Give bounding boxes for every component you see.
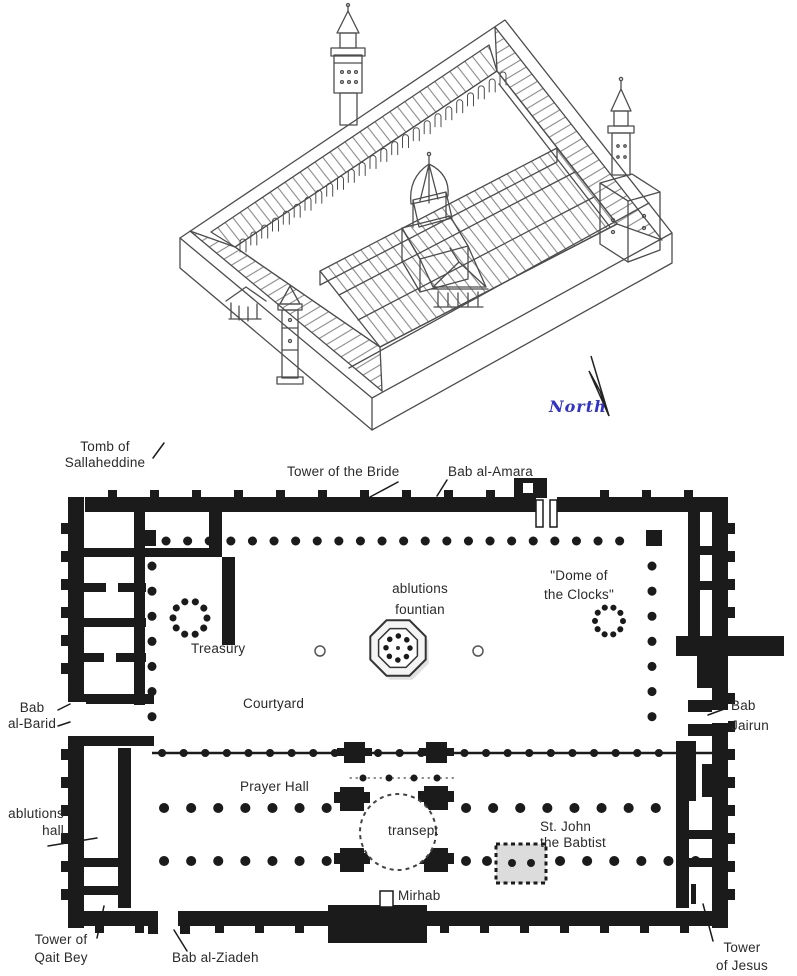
floor-plan [48,443,784,951]
label-line: the Clocks" [544,587,614,602]
label-tomb-of-sallaheddine: Tomb of Sallaheddine [40,439,170,471]
label-st-john-the-baptist: St. John the Babtist [540,819,606,851]
mosque-diagram: Tomb of Sallaheddine Tower of the Bride … [0,0,797,976]
label-dome-of-the-clocks: "Dome of the Clocks" [527,566,631,604]
label-line: ablutions [392,581,448,596]
label-tower-of-the-bride: Tower of the Bride [287,464,399,480]
ablutions-fountain-shape [370,620,428,679]
treasury-ring [173,601,207,635]
label-bab-jairun: Bab Jairun [731,696,769,736]
label-tower-of-jesus: Tower of Jesus [706,939,778,975]
label-bab-al-amara: Bab al-Amara [448,464,533,480]
label-courtyard: Courtyard [243,696,304,712]
isometric-view [180,4,672,431]
label-mihrab: Mirhab [398,888,440,904]
label-transept: transept [388,823,438,839]
label-ablutions-hall: ablutions hall [0,805,64,839]
st-john-shrine [496,844,546,883]
plan-walls [61,478,784,943]
label-line: St. John [540,819,591,834]
label-bab-al-ziadeh: Bab al-Ziadeh [172,950,259,966]
label-line: Bab [20,700,45,715]
label-line: Bab [731,698,756,713]
courtyard-small-circle-west [315,646,325,656]
courtyard-small-circle-east [473,646,483,656]
label-line: ablutions [8,806,64,821]
label-line: Qait Bey [34,950,87,965]
label-line: fountian [395,602,445,617]
label-line: Jairun [731,718,769,733]
mihrab-niche [380,891,393,907]
label-ablutions-fountain: ablutions fountian [368,578,472,620]
label-line: hall [42,823,64,838]
label-line: Tower [723,940,760,955]
label-north: North [549,399,607,415]
label-tower-of-qait-bey: Tower of Qait Bey [25,931,97,967]
label-line: of Jesus [716,958,768,973]
label-prayer-hall: Prayer Hall [240,779,309,795]
label-line: "Dome of [550,568,607,583]
label-line: Tower of [35,932,88,947]
label-line: the Babtist [540,835,606,850]
minaret-north [331,4,365,126]
label-bab-al-barid: Bab al-Barid [0,700,64,732]
label-treasury: Treasury [191,641,245,657]
label-line: Sallaheddine [65,455,145,470]
label-line: Tomb of [80,439,129,454]
dome-of-clocks-ring [595,607,623,635]
label-line: al-Barid [8,716,56,731]
